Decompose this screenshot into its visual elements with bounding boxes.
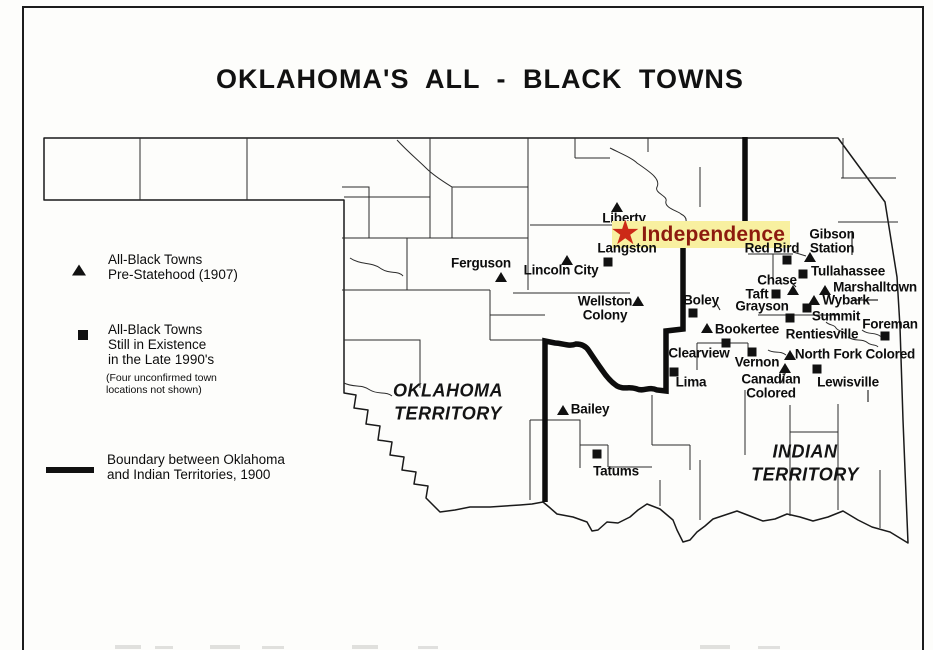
map-page: OKLAHOMA'S ALL - BLACK TOWNS — [0, 0, 933, 650]
town-tatums-label: Tatums — [593, 464, 639, 478]
town-lewisville-label: Lewisville — [817, 375, 879, 389]
square-icon — [799, 270, 808, 279]
town-summit-label: Summit — [812, 309, 860, 323]
town-langston-label: Langston — [597, 241, 656, 255]
town-lima-label: Lima — [676, 375, 707, 389]
square-icon — [803, 304, 812, 313]
town-grayson-label: Grayson — [735, 299, 788, 313]
square-icon — [772, 290, 781, 299]
triangle-icon — [701, 323, 713, 333]
town-canadian-colored-label: CanadianColored — [741, 373, 800, 400]
towns-layer: Liberty★IndependenceLangstonLincoln City… — [0, 0, 933, 650]
town-north-fork-colored-label: North Fork Colored — [795, 347, 915, 361]
town-bookertee-label: Bookertee — [715, 322, 779, 336]
square-icon — [786, 314, 795, 323]
square-icon — [813, 365, 822, 374]
town-gibson-station-label: GibsonStation — [809, 228, 854, 255]
town-chase-label: Chase — [757, 273, 797, 287]
town-boley-label: Boley — [683, 293, 719, 307]
town-rentiesville-label: Rentiesville — [786, 327, 859, 341]
square-icon — [881, 332, 890, 341]
town-wellston-colony-label: WellstonColony — [578, 295, 632, 322]
square-icon — [689, 309, 698, 318]
town-tullahassee-label: Tullahassee — [811, 264, 885, 278]
town-foreman-label: Foreman — [862, 317, 918, 331]
town-red-bird-label: Red Bird — [745, 241, 800, 255]
town-lincoln-city-label: Lincoln City — [524, 263, 599, 277]
town-vernon-label: Vernon — [735, 355, 780, 369]
square-icon — [593, 450, 602, 459]
town-ferguson-label: Ferguson — [451, 256, 511, 270]
square-icon — [783, 256, 792, 265]
town-clearview-label: Clearview — [668, 346, 729, 360]
triangle-icon — [495, 272, 507, 282]
town-bailey-label: Bailey — [571, 402, 610, 416]
town-wybark-label: Wybark — [822, 293, 869, 307]
triangle-icon — [557, 405, 569, 415]
square-icon — [604, 258, 613, 267]
triangle-icon — [632, 296, 644, 306]
